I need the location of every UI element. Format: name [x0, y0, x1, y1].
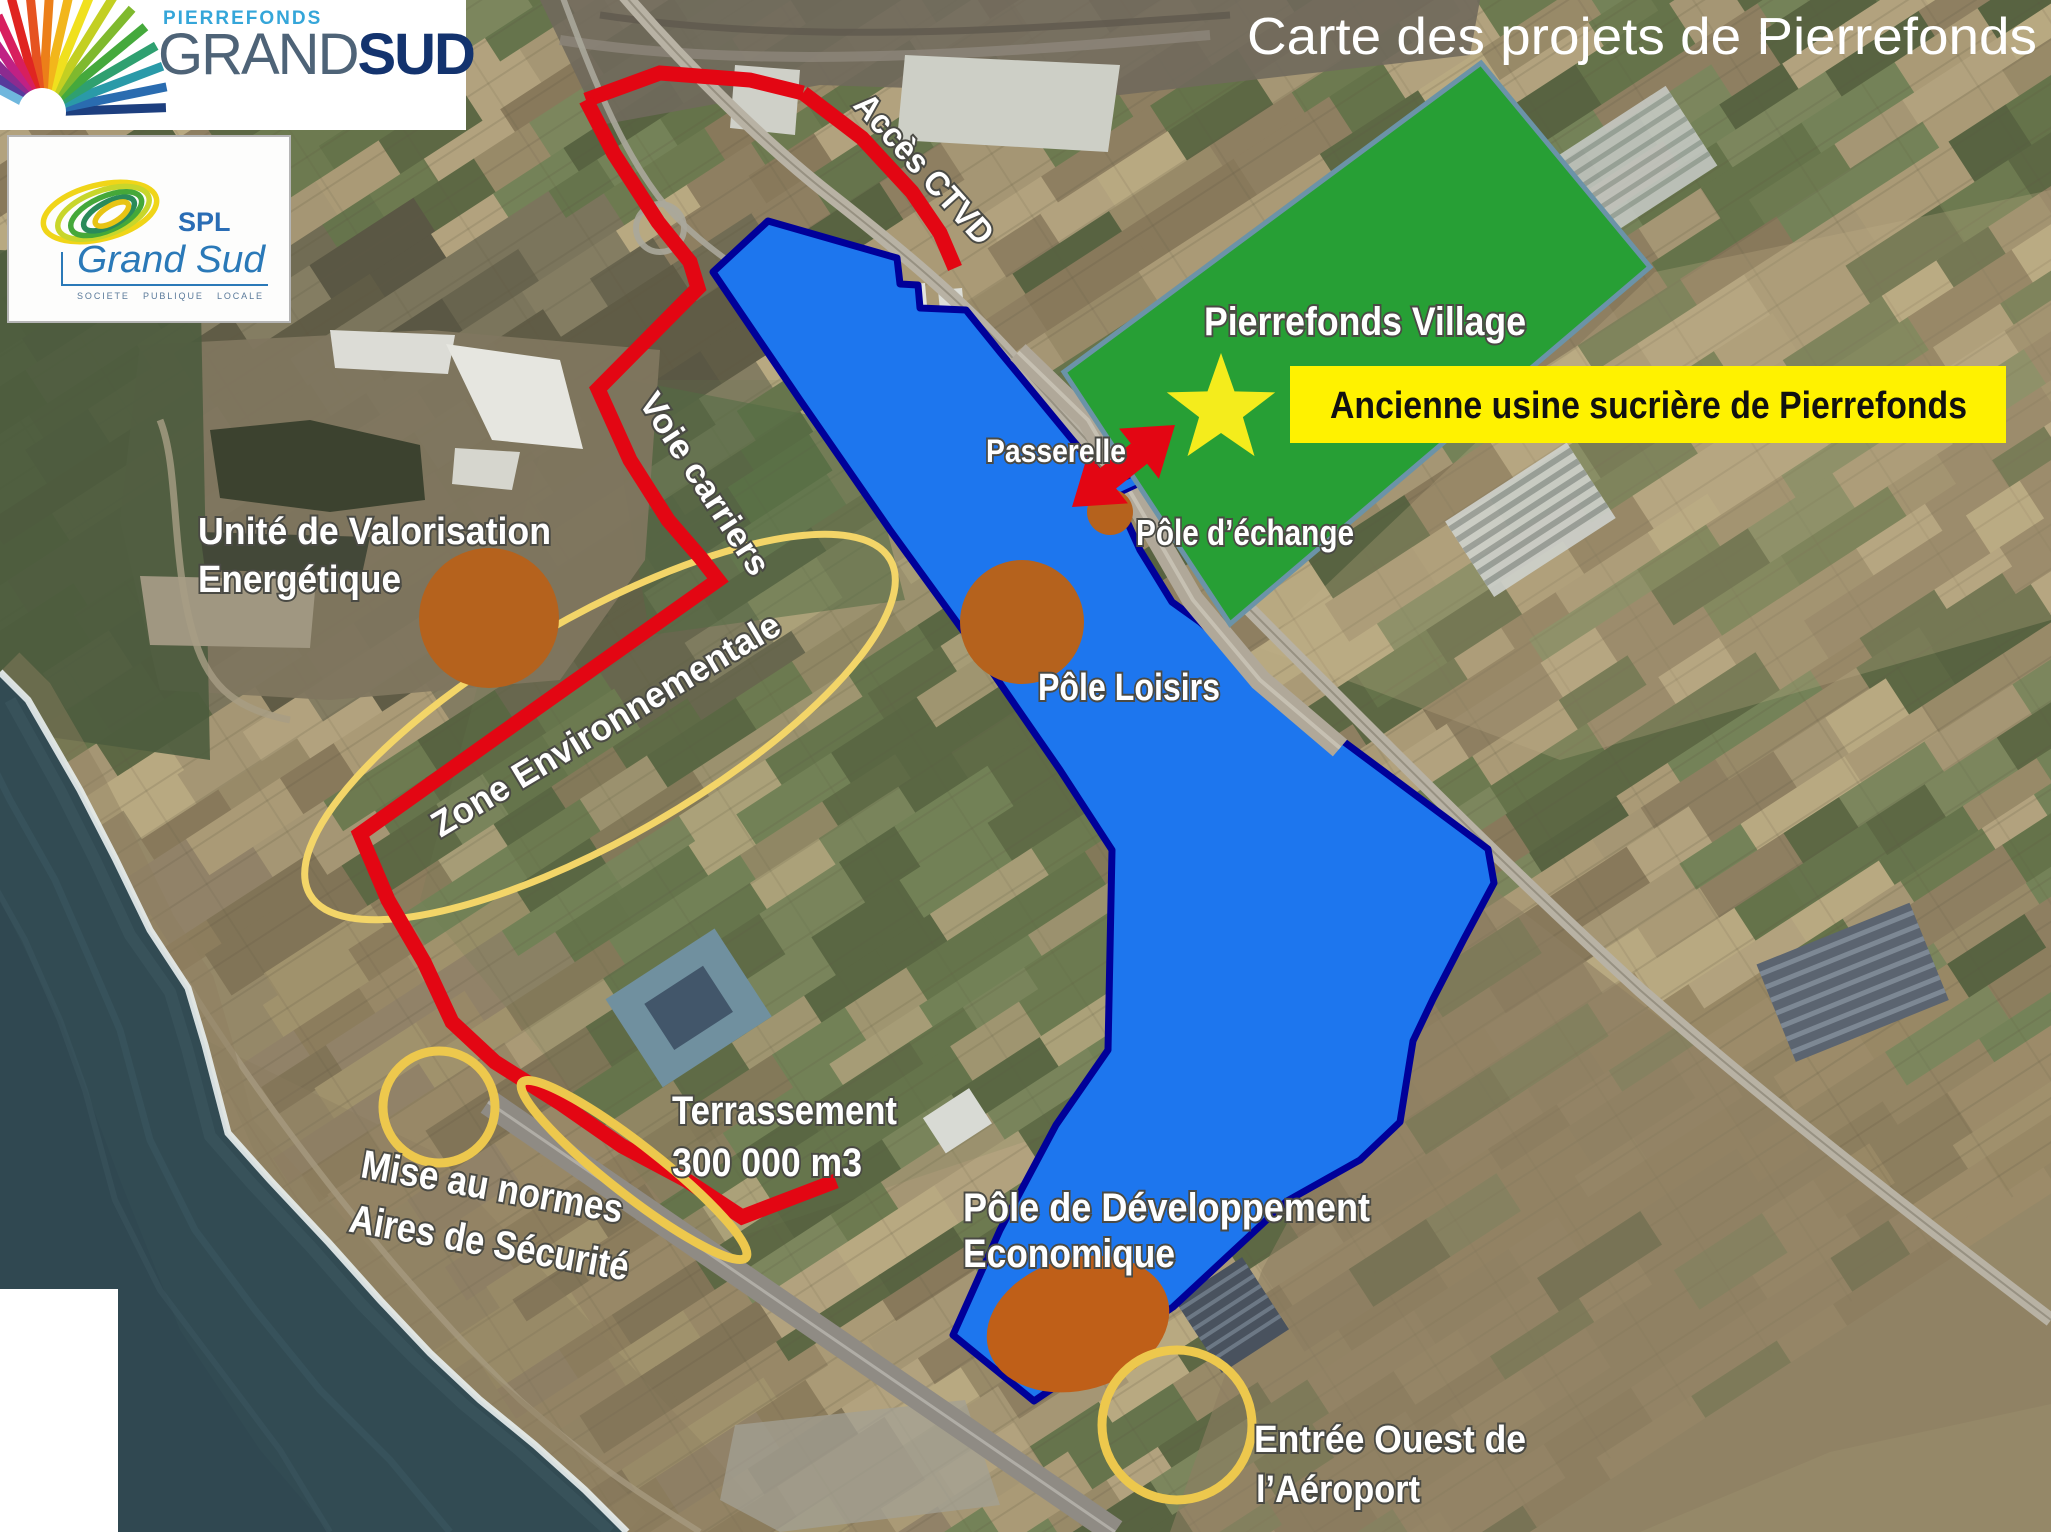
- svg-text:SPL: SPL: [178, 207, 231, 237]
- svg-text:300 000 m3: 300 000 m3: [672, 1141, 862, 1185]
- svg-text:Carte des projets de Pierrefon: Carte des projets de Pierrefonds: [1247, 8, 2037, 66]
- svg-text:Grand Sud: Grand Sud: [77, 239, 267, 281]
- svg-text:Passerelle: Passerelle: [986, 433, 1126, 469]
- svg-text:SOCIETE PUBLIQUE LOCALE: SOCIETE PUBLIQUE LOCALE: [77, 291, 265, 301]
- svg-text:l’Aéroport: l’Aéroport: [1256, 1469, 1420, 1511]
- svg-text:Pôle Loisirs: Pôle Loisirs: [1038, 667, 1220, 709]
- svg-text:Pôle d’échange: Pôle d’échange: [1136, 512, 1354, 553]
- svg-text:Economique: Economique: [963, 1232, 1175, 1276]
- svg-text:GRANDSUD: GRANDSUD: [158, 22, 474, 87]
- svg-text:Pierrefonds Village: Pierrefonds Village: [1204, 300, 1526, 344]
- svg-text:Pôle de Développement: Pôle de Développement: [963, 1186, 1370, 1230]
- svg-text:Entrée Ouest de: Entrée Ouest de: [1254, 1419, 1526, 1461]
- svg-text:Ancienne usine sucrière de Pie: Ancienne usine sucrière de Pierrefonds: [1330, 385, 1967, 427]
- svg-text:Unité de Valorisation: Unité de Valorisation: [198, 511, 551, 553]
- svg-text:Energétique: Energétique: [198, 559, 401, 601]
- svg-text:Terrassement: Terrassement: [672, 1089, 897, 1133]
